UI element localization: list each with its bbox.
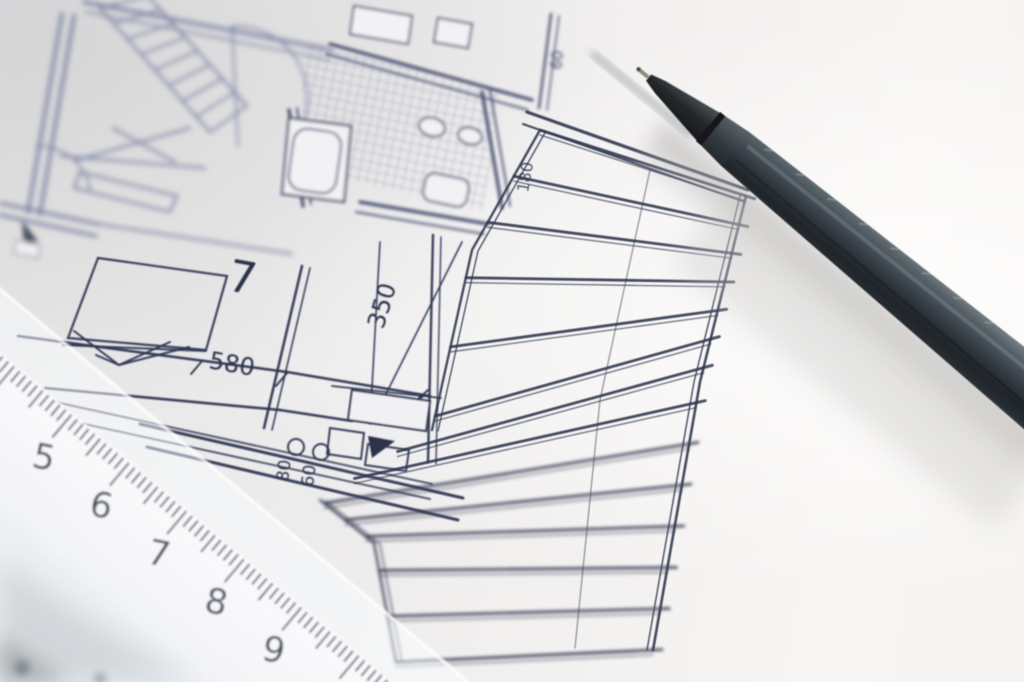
dimension-60-top: 60 — [547, 50, 567, 71]
photo-floor-plan-scene: 60 7 580 350 — [0, 0, 1024, 682]
staircase-drawing — [0, 0, 332, 258]
dimension-350: 350 — [362, 280, 402, 332]
dimension-580: 580 — [207, 346, 257, 382]
bathroom-drawing: 60 — [282, 6, 567, 234]
scene-svg: 60 7 580 350 — [0, 0, 1024, 682]
room-number-label: 7 — [224, 251, 260, 306]
